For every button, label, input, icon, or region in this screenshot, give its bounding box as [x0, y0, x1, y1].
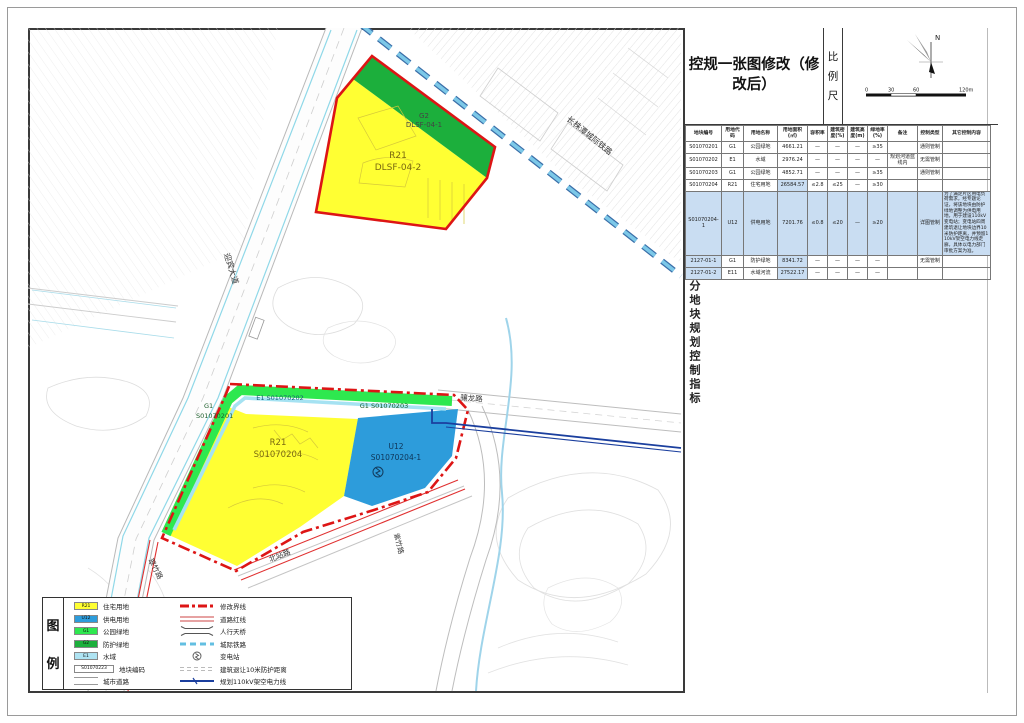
table-cell: —: [848, 255, 868, 267]
label-e1-02: E1 S01070202: [256, 394, 304, 402]
table-cell: [888, 255, 918, 267]
table-cell: 4852.71: [778, 167, 808, 179]
table-cell: U12: [722, 191, 744, 255]
legend-item: G2防护绿地: [74, 638, 179, 650]
table-cell: 26584.57: [778, 179, 808, 191]
legend-swatch: R21: [74, 602, 98, 610]
table-cell: —: [808, 154, 828, 168]
legend-label: 城际铁路: [220, 639, 246, 649]
table-cell: [918, 179, 943, 191]
legend-label: 城市道路: [103, 676, 129, 686]
table-cell: ≤2.8: [808, 179, 828, 191]
table-cell: —: [808, 255, 828, 267]
label-g2-code: G2: [419, 112, 429, 120]
label-zizhu-road: 紫竹路: [392, 532, 406, 555]
table-cell: 水域: [744, 154, 778, 168]
north-letter: N: [935, 34, 940, 42]
legend-item: G1公园绿地: [74, 625, 179, 637]
zoning-map: G2 DLSF-04-1 R21 DLSF-04-2 G1: [28, 28, 683, 693]
table-column-header: 控制类型: [918, 126, 943, 142]
table-cell: 规划河道蓝线内: [888, 154, 918, 168]
legend-right-column: 修改界线道路红线人行天桥城际铁路变电站建筑退让10米防护距离规划110kV架空电…: [179, 600, 351, 687]
table-column-header: 备注: [888, 126, 918, 142]
scale-tick-30: 30: [888, 88, 894, 94]
footbridge-icon: [179, 626, 215, 636]
scale-tick-60: 60: [913, 88, 919, 94]
table-cell: —: [808, 142, 828, 154]
legend-item: 建筑退让10米防护距离: [179, 663, 351, 675]
legend-caption-char-1: 图: [46, 615, 59, 634]
legend-label: 道路红线: [220, 614, 246, 624]
table-column-header: 地块编号: [686, 126, 722, 142]
table-cell: 住宅用地: [744, 179, 778, 191]
label-u12-id: S01070204-1: [371, 453, 422, 462]
legend-swatch: [74, 677, 98, 685]
table-cell: S01070201: [686, 142, 722, 154]
north-scale-cell: N 0 30 60 120m: [843, 28, 998, 124]
side-caption: 分地块规划控制指标: [686, 280, 702, 406]
legend-swatch: S01070223: [74, 665, 114, 673]
label-cuizhu-road: 翠竹路: [146, 556, 166, 581]
table-cell: 8341.72: [778, 255, 808, 267]
legend-item: U12供电用地: [74, 613, 179, 625]
table-cell: ≤20: [828, 191, 848, 255]
table-cell: [888, 179, 918, 191]
table-cell: ≤0.8: [808, 191, 828, 255]
protect-dist-icon: [179, 664, 215, 674]
table-cell: —: [868, 255, 888, 267]
north-petal-gray: [915, 34, 931, 62]
legend-label: 地块编码: [119, 664, 145, 674]
legend-item: 变电站: [179, 650, 351, 662]
table-cell: [943, 154, 991, 168]
north-petal-dark: [907, 40, 931, 62]
legend-item: E1水域: [74, 650, 179, 662]
table-cell: —: [828, 154, 848, 168]
table-cell: 详图管制: [918, 191, 943, 255]
legend-swatch: E1: [74, 652, 98, 660]
table-cell: —: [848, 191, 868, 255]
north-arrow: N: [893, 30, 957, 84]
table-cell: —: [868, 154, 888, 168]
table-cell: ≥20: [868, 191, 888, 255]
label-r21-top-id: DLSF-04-2: [375, 163, 422, 173]
table-cell: —: [848, 267, 868, 279]
table-cell: 7201.76: [778, 191, 808, 255]
table-cell: 无需管制: [918, 154, 943, 168]
label-u12-code: U12: [388, 442, 403, 451]
table-column-header: 用地面积(㎡): [778, 126, 808, 142]
legend-item: S01070223地块编码: [74, 663, 179, 675]
legend-label: 水域: [103, 651, 116, 661]
legend-item: R21住宅用地: [74, 600, 179, 612]
label-r21-top-code: R21: [389, 151, 407, 161]
table-column-header: 建筑密度(%): [828, 126, 848, 142]
table-row: S01070203G1公园绿地4852.71———≥35通则管制: [686, 167, 991, 179]
legend-label: 修改界线: [220, 601, 246, 611]
table-cell: [943, 267, 991, 279]
table-cell: E11: [722, 267, 744, 279]
table-column-header: 绿地率(%): [868, 126, 888, 142]
table-cell: [943, 179, 991, 191]
table-cell: [943, 142, 991, 154]
label-g1-01-id: S01070201: [196, 412, 233, 420]
table-cell: —: [848, 167, 868, 179]
table-row: S01070204-1U12供电用地7201.76≤0.8≤20—≥20详图管制…: [686, 191, 991, 255]
table-cell: 防护绿地: [744, 255, 778, 267]
table-cell: ≥35: [868, 167, 888, 179]
table-cell: [943, 167, 991, 179]
label-xianglong-road: 骧龙路: [460, 392, 484, 404]
setback-line-icon: [179, 614, 215, 624]
table-cell: —: [848, 154, 868, 168]
table-cell: ≤25: [828, 179, 848, 191]
table-cell: G1: [722, 142, 744, 154]
right-panel: 控规一张图修改（修改后） 比例尺 N 0 30: [683, 28, 996, 693]
legend-label: 变电站: [220, 651, 240, 661]
table-cell: —: [808, 267, 828, 279]
legend-swatch: U12: [74, 615, 98, 623]
power-line-icon: [179, 676, 215, 686]
table-cell: 2127-01-1: [686, 255, 722, 267]
legend-caption: 图 例: [43, 598, 64, 689]
plan-sheet: G2 DLSF-04-1 R21 DLSF-04-2 G1: [0, 0, 1024, 723]
table-cell: [888, 167, 918, 179]
legend-item: 道路红线: [179, 613, 351, 625]
table-cell: [888, 191, 918, 255]
table-cell: 4661.21: [778, 142, 808, 154]
table-row: S01070201G1公园绿地4661.21———≥35通则管制: [686, 142, 991, 154]
label-r21-lower-id: S01070204: [254, 450, 303, 460]
table-column-header: 建筑高度(m): [848, 126, 868, 142]
boundary-line-icon: [179, 601, 215, 611]
table-cell: 为了满足片区用电负荷需求，经专题论证，将该地块由防护绿地调整为供电用地，用于建设…: [943, 191, 991, 255]
table-cell: [888, 142, 918, 154]
table-cell: —: [808, 167, 828, 179]
table-cell: S01070204: [686, 179, 722, 191]
table-row: S01070202E1水域2976.24————规划河道蓝线内无需管制: [686, 154, 991, 168]
legend-label: 公园绿地: [103, 626, 129, 636]
parcel-s010702: G1 S01070201 E1 S01070202 G1 S01070203 R…: [162, 384, 681, 571]
table-cell: 通则管制: [918, 167, 943, 179]
table-column-header: 用地代码: [722, 126, 744, 142]
scale-tick-0: 0: [865, 88, 868, 94]
legend-item: 人行天桥: [179, 625, 351, 637]
legend-label: 人行天桥: [220, 626, 246, 636]
power-line-110kv: [432, 409, 681, 452]
table-cell: —: [828, 167, 848, 179]
intercity-rail-icon: [179, 639, 215, 649]
legend-item: 规划110kV架空电力线: [179, 675, 351, 687]
table-row: 2127-01-1G1防护绿地8341.72————无需管制: [686, 255, 991, 267]
table-cell: —: [828, 142, 848, 154]
table-cell: —: [848, 142, 868, 154]
north-petal-small: [929, 62, 935, 74]
substation-icon: [179, 651, 215, 661]
table-cell: [918, 267, 943, 279]
legend-item: 修改界线: [179, 600, 351, 612]
scale-bar: 0 30 60 120m: [861, 86, 981, 104]
table-cell: 供电用地: [744, 191, 778, 255]
legend-label: 防护绿地: [103, 639, 129, 649]
table-cell: 2976.24: [778, 154, 808, 168]
table-column-header: 用地名称: [744, 126, 778, 142]
legend-swatch: G1: [74, 627, 98, 635]
table-row: 2127-01-2E11水域河流27522.17————: [686, 267, 991, 279]
scale-label: 比例尺: [824, 28, 843, 124]
title-block: 控规一张图修改（修改后） 比例尺 N 0 30: [685, 28, 998, 125]
table-cell: E1: [722, 154, 744, 168]
label-g2-id: DLSF-04-1: [406, 121, 442, 129]
label-r21-lower-code: R21: [270, 438, 287, 448]
table-cell: 无需管制: [918, 255, 943, 267]
table-cell: 公园绿地: [744, 142, 778, 154]
legend-label: 规划110kV架空电力线: [220, 676, 286, 686]
sheet-title: 控规一张图修改（修改后）: [685, 28, 824, 124]
legend-item: 城际铁路: [179, 638, 351, 650]
legend-body: R21住宅用地U12供电用地G1公园绿地G2防护绿地E1水域S01070223地…: [64, 598, 351, 689]
table-cell: G1: [722, 167, 744, 179]
table-cell: S01070202: [686, 154, 722, 168]
table-cell: 2127-01-2: [686, 267, 722, 279]
legend-label: 建筑退让10米防护距离: [220, 664, 287, 674]
table-cell: —: [828, 255, 848, 267]
table-cell: —: [848, 179, 868, 191]
table-cell: 公园绿地: [744, 167, 778, 179]
table-column-header: 容积率: [808, 126, 828, 142]
legend-caption-char-2: 例: [46, 653, 59, 672]
river-line: [476, 318, 512, 691]
table-cell: G1: [722, 255, 744, 267]
table-cell: S01070204-1: [686, 191, 722, 255]
table-cell: ≥30: [868, 179, 888, 191]
table-cell: [888, 267, 918, 279]
legend-left-column: R21住宅用地U12供电用地G1公园绿地G2防护绿地E1水域S01070223地…: [74, 600, 179, 687]
table-column-header: 其它控制内容: [943, 126, 991, 142]
table-cell: 水域河流: [744, 267, 778, 279]
legend-swatch: G2: [74, 640, 98, 648]
label-g1-03: G1 S01070203: [360, 402, 408, 410]
table-cell: 27522.17: [778, 267, 808, 279]
scale-tick-120: 120m: [959, 88, 974, 94]
legend-label: 住宅用地: [103, 601, 129, 611]
table-cell: [943, 255, 991, 267]
table-cell: S01070203: [686, 167, 722, 179]
legend-label: 供电用地: [103, 614, 129, 624]
legend-item: 城市道路: [74, 675, 179, 687]
control-indicators-table: 地块编号用地代码用地名称用地面积(㎡)容积率建筑密度(%)建筑高度(m)绿地率(…: [685, 125, 991, 280]
table-row: S01070204R21住宅用地26584.57≤2.8≤25—≥30: [686, 179, 991, 191]
label-g1-01-code: G1: [204, 402, 213, 410]
table-cell: 通则管制: [918, 142, 943, 154]
table-cell: —: [868, 267, 888, 279]
table-cell: —: [828, 267, 848, 279]
legend-box: 图 例 R21住宅用地U12供电用地G1公园绿地G2防护绿地E1水域S01070…: [42, 597, 352, 690]
table-cell: ≥35: [868, 142, 888, 154]
table-cell: R21: [722, 179, 744, 191]
